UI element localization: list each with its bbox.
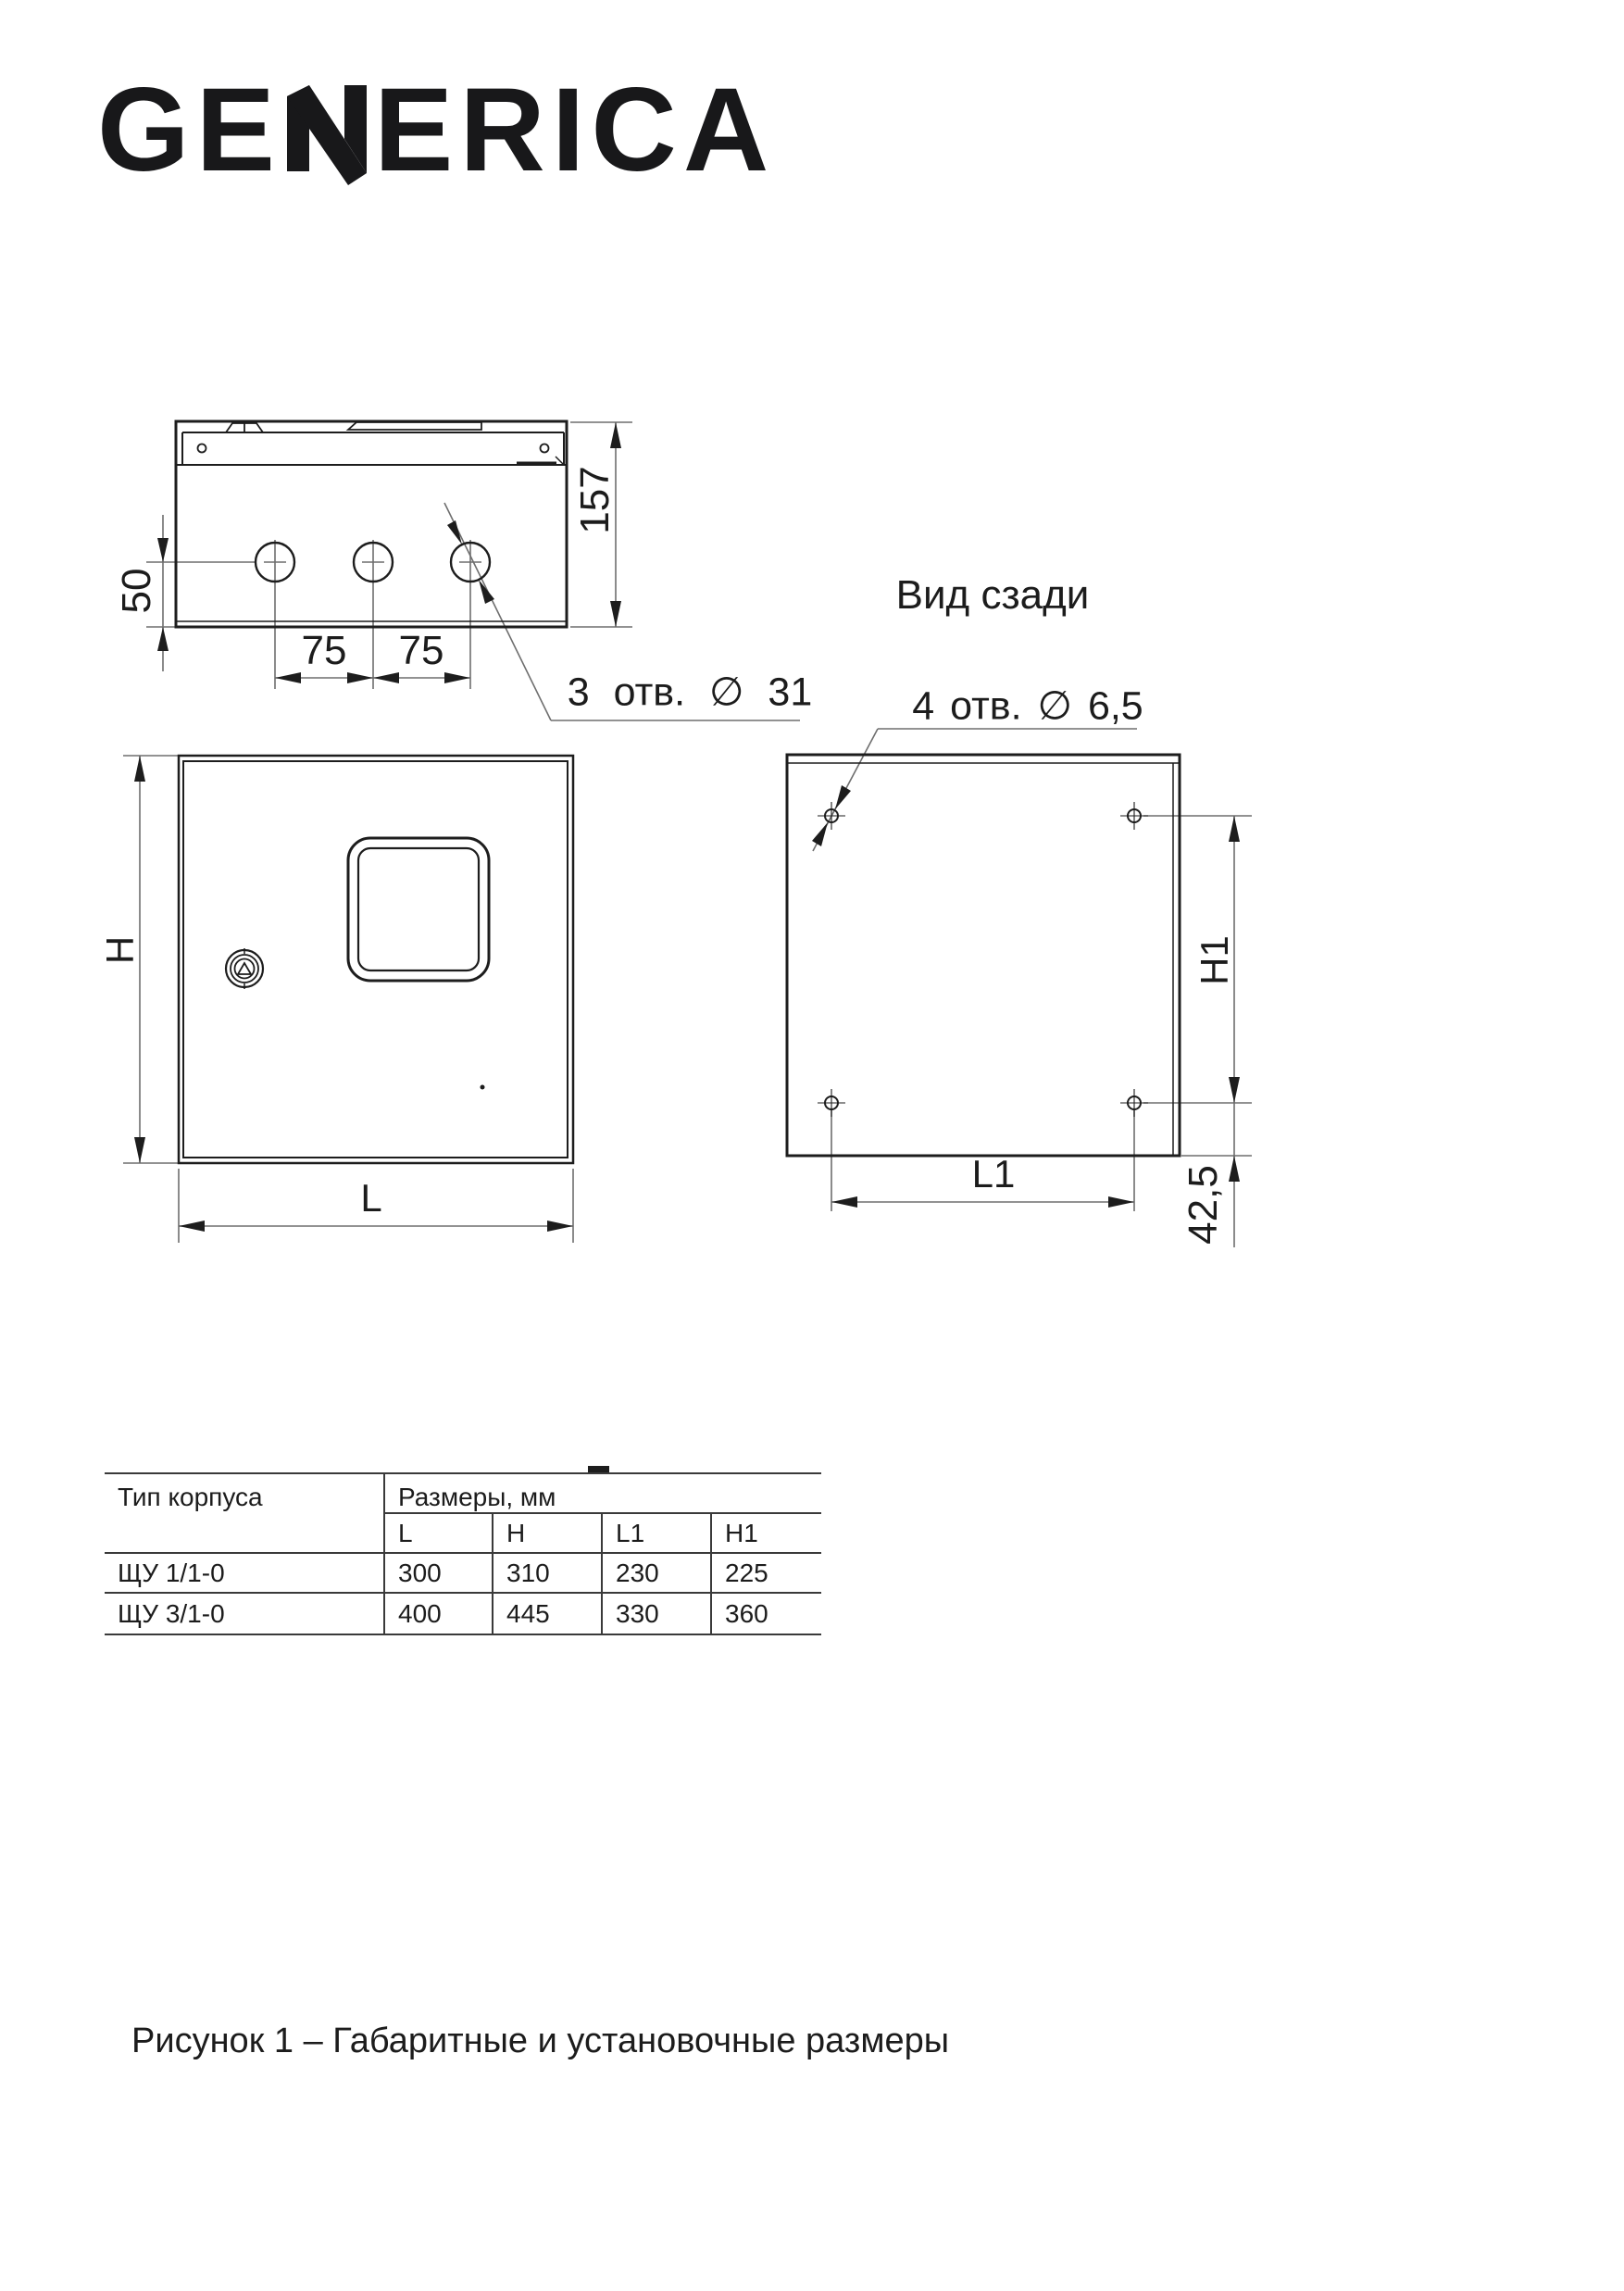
mounting-holes	[825, 809, 1141, 1109]
table-cell-type: ЩУ 1/1-0	[105, 1553, 384, 1593]
holes-callout-31: 3 отв. ∅ 31	[568, 673, 813, 713]
table-header-type: Тип корпуса	[105, 1473, 384, 1553]
table-header-sizes: Размеры, мм	[384, 1473, 821, 1513]
table-cell-h1: 360	[711, 1593, 821, 1634]
front-view-drawing	[123, 756, 573, 1243]
stray-print-mark	[588, 1466, 609, 1472]
dim-label-h: H	[101, 936, 140, 964]
table-subheader-h1: H1	[711, 1513, 821, 1553]
figure-caption: Рисунок 1 – Габаритные и установочные ра…	[131, 2023, 949, 2059]
table-row: ЩУ 3/1-0 400 445 330 360	[105, 1593, 821, 1634]
dim-label-l1: L1	[972, 1155, 1016, 1194]
holes-callout-65: 4 отв. ∅ 6,5	[912, 687, 1143, 727]
table-row: ЩУ 1/1-0 300 310 230 225	[105, 1553, 821, 1593]
table-cell-h: 310	[493, 1553, 602, 1593]
table-cell-h: 445	[493, 1593, 602, 1634]
datasheet-page: GE ERICA	[0, 0, 1624, 2291]
table-subheader-h: H	[493, 1513, 602, 1553]
table-cell-l: 300	[384, 1553, 493, 1593]
door-lock-icon	[226, 948, 263, 989]
dim-label-50: 50	[117, 569, 157, 614]
table-cell-l1: 330	[602, 1593, 711, 1634]
table-subheader-l: L	[384, 1513, 493, 1553]
dim-label-42-5: 42,5	[1183, 1165, 1224, 1245]
dim-label-157: 157	[575, 466, 616, 533]
dim-label-75-b: 75	[399, 631, 444, 671]
table-cell-l: 400	[384, 1593, 493, 1634]
rear-view-title: Вид сзади	[896, 575, 1090, 616]
rear-view-dimension-arrows	[812, 785, 1240, 1208]
dim-label-75-a: 75	[302, 631, 347, 671]
table-cell-h1: 225	[711, 1553, 821, 1593]
front-view-dimension-arrows	[134, 756, 573, 1232]
table-cell-type: ЩУ 3/1-0	[105, 1593, 384, 1634]
meter-window	[348, 838, 489, 981]
table-cell-l1: 230	[602, 1553, 711, 1593]
dimensions-table: Тип корпуса Размеры, мм L H L1 H1 ЩУ 1/1…	[105, 1472, 821, 1635]
dim-label-h1: H1	[1195, 935, 1234, 985]
table-subheader-l1: L1	[602, 1513, 711, 1553]
dim-label-l: L	[360, 1179, 381, 1218]
technical-drawing	[0, 0, 1624, 2291]
